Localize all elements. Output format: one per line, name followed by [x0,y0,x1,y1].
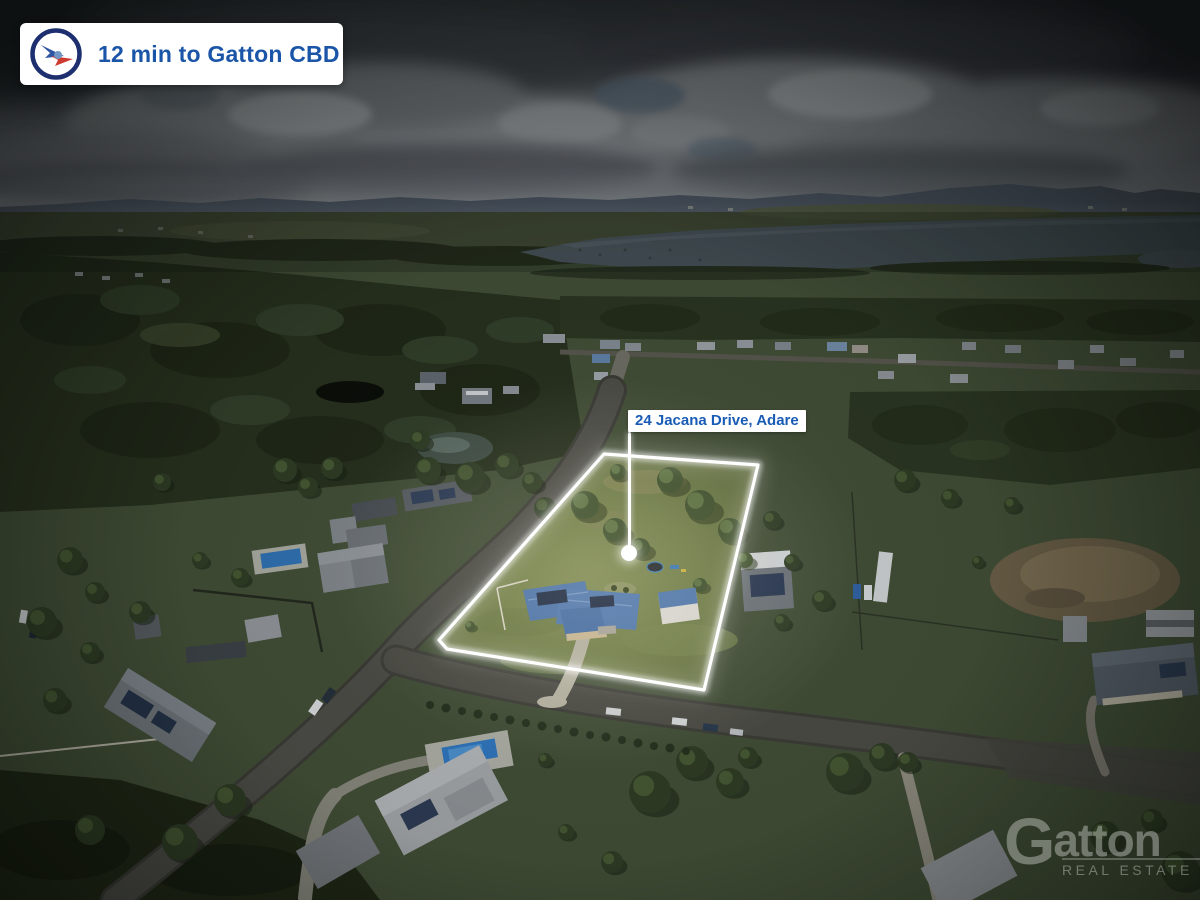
watermark-brand-rest: atton [1053,817,1160,863]
aerial-photograph [0,0,1200,900]
travel-time-badge: 12 min to Gatton CBD [20,23,343,85]
property-address-label: 24 Jacana Drive, Adare [628,410,806,432]
compass-logo-icon [28,26,84,82]
agency-watermark: Gatton REAL ESTATE [1004,816,1200,886]
pointer-dot [621,545,637,561]
travel-time-text: 12 min to Gatton CBD [98,41,340,68]
real-estate-aerial-photo: 12 min to Gatton CBD 24 Jacana Drive, Ad… [0,0,1200,900]
pointer-line [628,432,631,546]
watermark-initial: G [1004,816,1053,867]
